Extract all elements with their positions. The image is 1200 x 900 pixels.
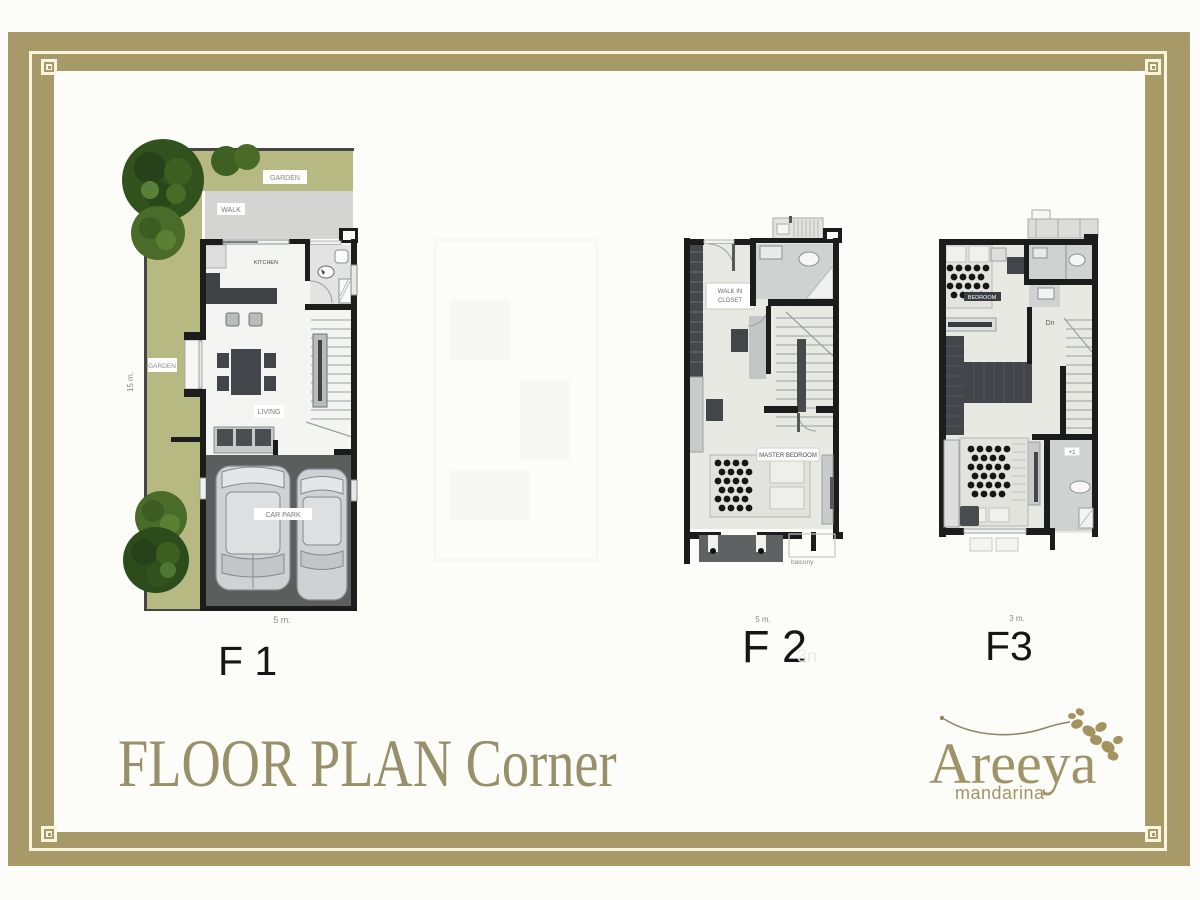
svg-text:KITCHEN: KITCHEN (254, 260, 278, 266)
svg-text:15 m.: 15 m. (126, 372, 135, 392)
svg-text:GARDEN: GARDEN (270, 175, 300, 182)
svg-text:3n: 3n (797, 646, 817, 666)
svg-text:balcony: balcony (791, 559, 814, 566)
svg-text:F3: F3 (985, 623, 1033, 669)
svg-text:BEDROOM: BEDROOM (968, 295, 997, 301)
svg-text:MASTER BEDROOM: MASTER BEDROOM (759, 453, 817, 459)
svg-text:LIVING: LIVING (258, 409, 281, 416)
svg-text:GARDEN: GARDEN (148, 363, 176, 370)
svg-text:F 1: F 1 (218, 638, 277, 684)
svg-text:5 m.: 5 m. (273, 615, 291, 625)
svg-text:3 m.: 3 m. (1009, 614, 1025, 623)
svg-text:WALK: WALK (221, 207, 241, 214)
svg-text:+1: +1 (1069, 450, 1077, 456)
svg-text:CAR PARK: CAR PARK (265, 512, 301, 519)
svg-text:WALK IN: WALK IN (718, 289, 742, 295)
svg-text:Dn: Dn (1046, 320, 1055, 327)
svg-text:CLOSET: CLOSET (718, 298, 742, 304)
